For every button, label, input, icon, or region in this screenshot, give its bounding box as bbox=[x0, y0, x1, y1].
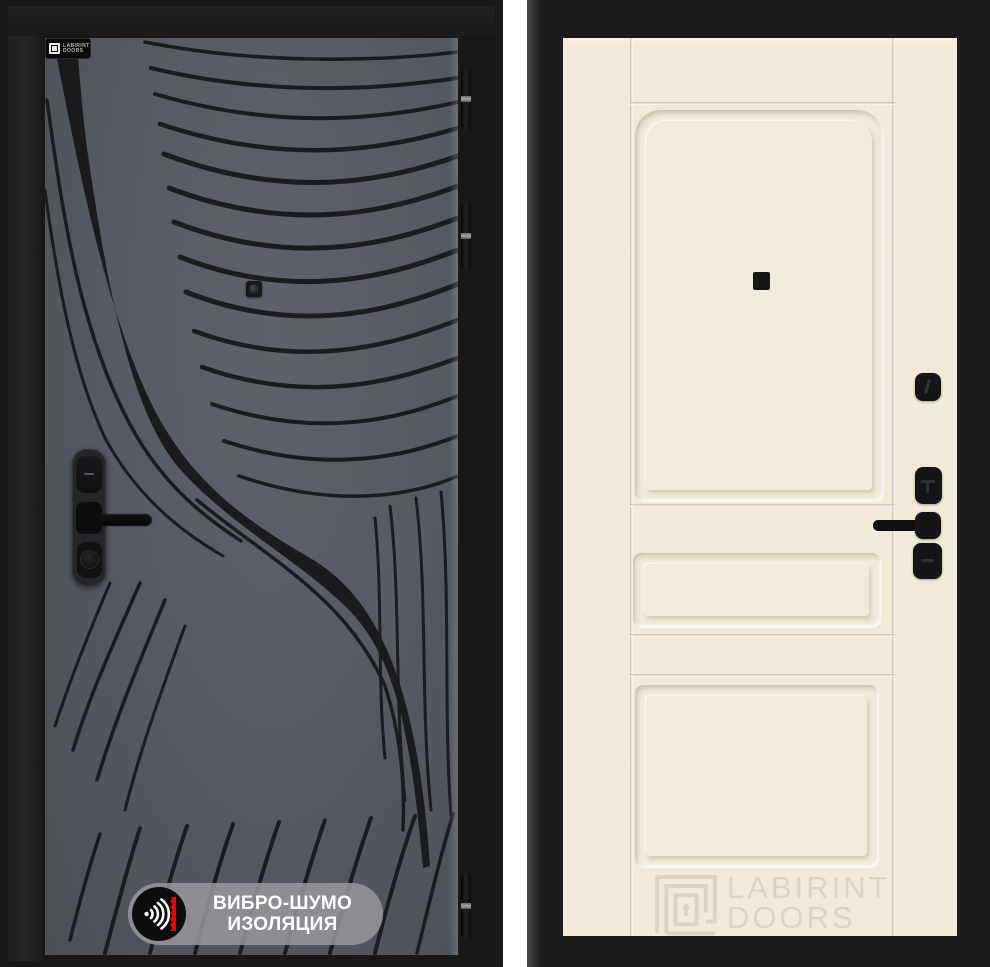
hinge-band bbox=[461, 233, 471, 239]
hinge-band bbox=[461, 96, 471, 102]
badge-text: ВИБРО-ШУМО ИЗОЛЯЦИЯ bbox=[190, 893, 375, 935]
handle-rosette bbox=[915, 512, 941, 539]
smart-lock-keypad bbox=[76, 455, 102, 493]
door-handle-interior bbox=[873, 520, 921, 531]
top-panel-molding bbox=[635, 110, 883, 501]
handle-hub bbox=[76, 502, 102, 534]
right-door-image: LABIRINT DOORS bbox=[527, 0, 990, 967]
brand-plaque: LABIRINT DOORS bbox=[46, 39, 90, 58]
door-leaf-interior: LABIRINT DOORS bbox=[563, 38, 957, 936]
bottom-panel-field bbox=[646, 696, 867, 856]
left-door-image: LABIRINT DOORS bbox=[0, 0, 503, 967]
door-frame-left-jamb bbox=[8, 6, 42, 961]
night-latch bbox=[915, 373, 941, 401]
hinge-middle bbox=[461, 203, 471, 270]
rail-groove-upper-mid bbox=[630, 504, 895, 507]
middle-panel-molding bbox=[633, 553, 880, 627]
vortex-wave-pattern bbox=[45, 38, 458, 955]
watermark-text: LABIRINT DOORS bbox=[727, 873, 891, 933]
door-frame-left-jamb bbox=[527, 0, 542, 967]
watermark: LABIRINT DOORS bbox=[653, 873, 891, 936]
door-frame-top bbox=[8, 6, 495, 36]
thumbturn-lock bbox=[915, 467, 942, 504]
bottom-panel-molding bbox=[635, 685, 878, 867]
stile-groove-left bbox=[630, 38, 633, 936]
lock-cylinder bbox=[77, 542, 102, 578]
middle-panel-field bbox=[644, 564, 869, 616]
hinge-bottom bbox=[461, 872, 471, 940]
top-panel-field bbox=[646, 121, 872, 490]
peephole-interior bbox=[753, 272, 770, 290]
rail-groove-lower-mid bbox=[630, 634, 895, 637]
vibro-noise-insulation-badge: ВИБРО-ШУМО ИЗОЛЯЦИЯ bbox=[128, 883, 383, 945]
image-gap-divider bbox=[503, 0, 527, 967]
rail-groove-top bbox=[630, 102, 895, 105]
hinge-band bbox=[461, 903, 471, 909]
peephole-exterior bbox=[246, 281, 262, 297]
rail-groove-bottom bbox=[630, 674, 895, 677]
deadbolt-lock bbox=[913, 543, 942, 579]
door-leaf-edge-highlight bbox=[449, 38, 458, 955]
watermark-maze-logo-icon bbox=[653, 873, 719, 936]
door-leaf-exterior bbox=[45, 38, 458, 955]
labirint-logo-icon bbox=[49, 43, 60, 54]
product-image-two-door-sides: LABIRINT DOORS bbox=[0, 0, 990, 967]
brand-plaque-text: LABIRINT DOORS bbox=[63, 44, 90, 54]
sound-insulation-icon bbox=[132, 887, 186, 941]
hinge-top bbox=[461, 68, 471, 130]
stile-groove-right bbox=[892, 38, 895, 936]
